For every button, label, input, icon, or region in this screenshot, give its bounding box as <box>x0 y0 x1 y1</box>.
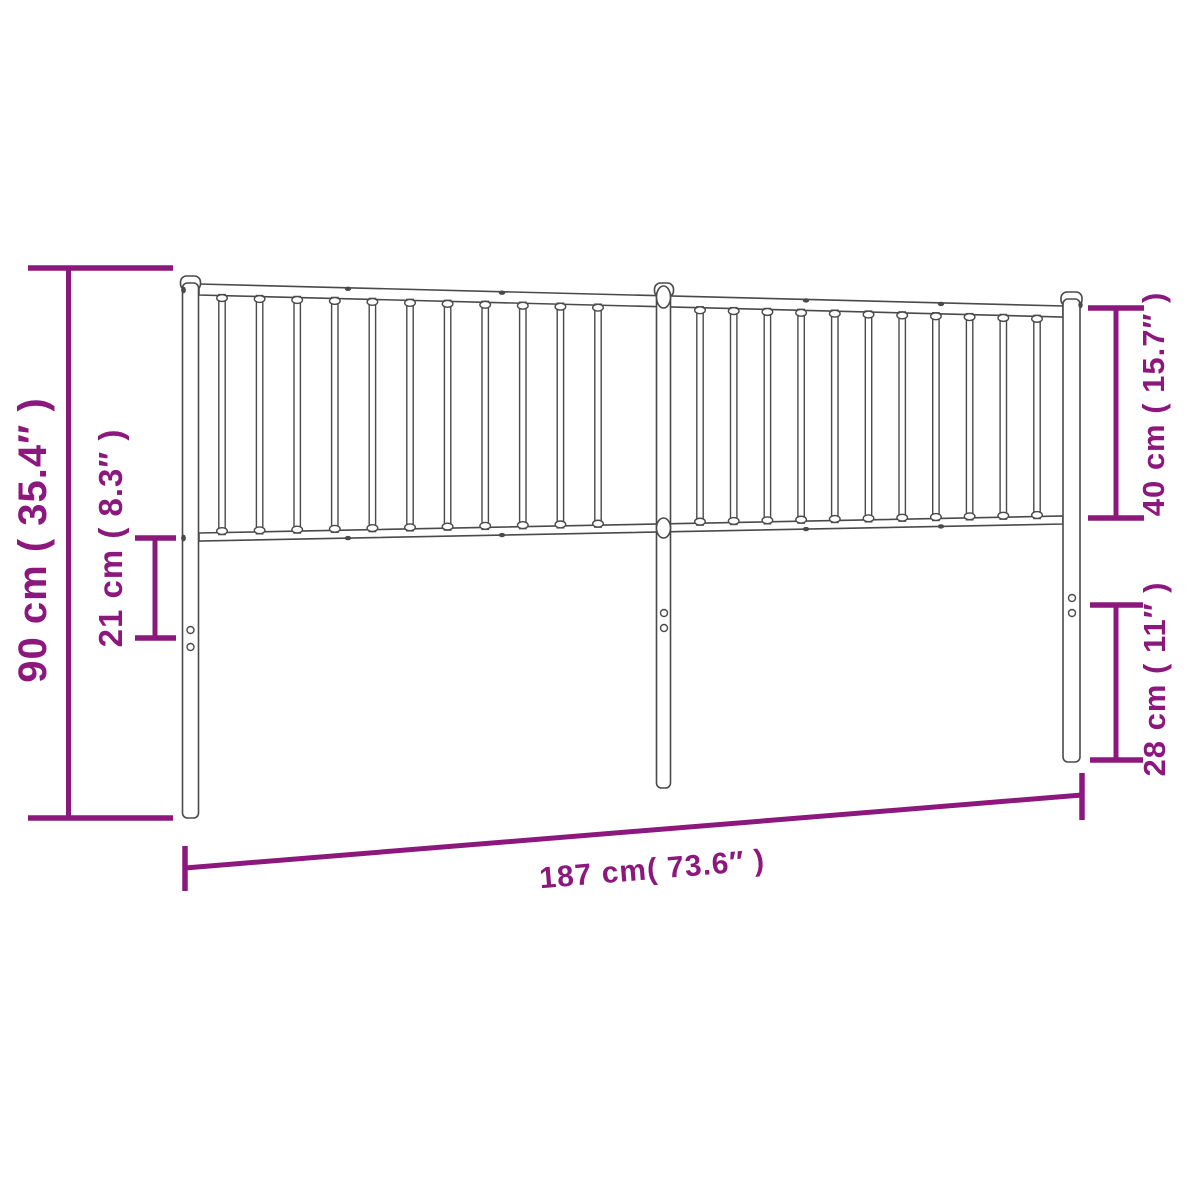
left-post-rail-weld-dot <box>181 535 186 542</box>
spindle-top-sleeve <box>897 312 908 319</box>
top-rail-weld-dot <box>803 298 809 302</box>
overall-width-label: 187 cm( 73.6″ ) <box>538 844 766 895</box>
spindle-top-sleeve <box>762 309 773 316</box>
spindle-tube <box>832 310 838 522</box>
spindle <box>555 303 566 528</box>
spindle-top-sleeve <box>830 310 841 317</box>
spindle <box>931 313 942 521</box>
spindle-bottom-sleeve <box>367 525 378 532</box>
spindle-bottom-sleeve <box>292 526 303 533</box>
dimension-leg-height: 28 cm ( 11″ ) <box>1090 581 1172 776</box>
lower-rail-weld-dot <box>345 536 351 540</box>
right-post <box>1061 292 1083 762</box>
spindle <box>998 314 1009 519</box>
spindle-bottom-sleeve <box>998 512 1009 519</box>
spindle-bottom-sleeve <box>593 520 604 527</box>
spindle <box>863 311 874 522</box>
left-post-top-weld-dot <box>181 287 186 294</box>
spindle-top-sleeve <box>728 308 739 315</box>
spindle-top-sleeve <box>254 296 265 303</box>
spindle <box>330 297 341 532</box>
spindles <box>217 295 1043 535</box>
top-rail-weld-dot <box>345 287 351 291</box>
spindle-top-sleeve <box>292 297 303 304</box>
spindle-bottom-sleeve <box>1032 512 1043 519</box>
spindle <box>593 304 604 527</box>
spindle-tube <box>731 308 737 525</box>
spindle-top-sleeve <box>1032 315 1043 322</box>
spindle-top-sleeve <box>367 299 378 306</box>
top-rail-weld-dot <box>938 302 944 306</box>
spindle-top-sleeve <box>998 315 1009 322</box>
spindle-top-sleeve <box>931 313 942 320</box>
lower-rail-weld-dot <box>938 524 944 528</box>
middle-post <box>655 283 674 788</box>
spindle-top-sleeve <box>863 311 874 318</box>
left-post-hole-upper <box>187 627 194 634</box>
spindle-tube <box>697 307 703 525</box>
middle-post-lower-ring <box>657 518 671 538</box>
spindle-top-sleeve <box>796 309 807 316</box>
right-post-top-weld-dot <box>1078 302 1082 308</box>
spindle-bottom-sleeve <box>217 528 228 535</box>
right-post-body <box>1063 299 1080 762</box>
spindle-tube <box>219 295 225 535</box>
spindle <box>292 297 303 534</box>
spindle-bottom-sleeve <box>897 514 908 521</box>
headboard-dimension-diagram: 90 cm ( 35.4″ ) 21 cm ( 8.3″ ) 40 cm ( 1… <box>0 0 1200 1200</box>
spindle <box>518 302 529 528</box>
spindle <box>1032 315 1043 518</box>
spindle-top-sleeve <box>442 300 453 307</box>
spindle <box>964 314 975 520</box>
spindle-tube <box>557 303 563 528</box>
spindle <box>762 308 773 523</box>
spindle-tube <box>1034 315 1040 518</box>
spindle-tube <box>407 299 413 530</box>
spindle-tube <box>482 301 488 529</box>
spindle-bottom-sleeve <box>480 522 491 529</box>
dimension-overall-width: 187 cm( 73.6″ ) <box>185 773 1082 895</box>
middle-post-body <box>657 290 671 788</box>
spindle-top-sleeve <box>330 298 341 305</box>
spindle <box>480 301 491 529</box>
spindle-tube <box>520 302 526 528</box>
headboard-drawing <box>181 276 1083 818</box>
spindle-tube <box>1000 314 1006 519</box>
dimension-panel-height: 40 cm ( 15.7″ ) <box>1088 292 1171 518</box>
spindle-bottom-sleeve <box>931 514 942 521</box>
spindle-bottom-sleeve <box>863 515 874 522</box>
panel-height-label: 40 cm ( 15.7″ ) <box>1136 292 1171 517</box>
spindle <box>728 308 739 525</box>
right-post-hole-upper <box>1069 595 1076 602</box>
spindle-bottom-sleeve <box>728 518 739 525</box>
spindle-tube <box>865 311 871 522</box>
middle-post-top-ring <box>657 286 671 308</box>
spindle-bottom-sleeve <box>518 522 529 529</box>
top-rail-weld-dot <box>499 291 505 295</box>
spindle-top-sleeve <box>518 302 529 309</box>
spindle <box>897 312 908 521</box>
spindle-tube <box>256 296 262 534</box>
middle-post-hole-upper <box>661 610 668 617</box>
spindle-bottom-sleeve <box>796 516 807 523</box>
rail-weld-dots <box>345 287 944 541</box>
spindle-top-sleeve <box>695 307 706 314</box>
spindle-tube <box>899 312 905 521</box>
spindle-bottom-sleeve <box>405 524 416 531</box>
spindle <box>830 310 841 522</box>
spindle <box>254 296 265 534</box>
leg-height-label: 28 cm ( 11″ ) <box>1137 581 1172 776</box>
spindle-tube <box>369 298 375 531</box>
spindle-tube <box>294 297 300 534</box>
spindle <box>405 299 416 530</box>
spindle-tube <box>332 297 338 532</box>
spindle-top-sleeve <box>217 295 228 302</box>
spindle-tube <box>798 309 804 523</box>
spindle-tube <box>595 304 601 527</box>
spindle-tube <box>444 300 450 530</box>
middle-post-hole-lower <box>661 625 668 632</box>
spindle <box>695 307 706 525</box>
left-post-body <box>183 283 199 818</box>
lower-rail-weld-dot <box>803 527 809 531</box>
spindle-bottom-sleeve <box>555 521 566 528</box>
spindle <box>796 309 807 523</box>
spindle-bottom-sleeve <box>964 513 975 520</box>
spindle-top-sleeve <box>555 303 566 310</box>
left-post-hole-lower <box>187 644 194 651</box>
top-rail <box>199 284 1063 317</box>
right-post-hole-lower <box>1069 610 1076 617</box>
lower-rail-weld-dot <box>499 533 505 537</box>
spindle-bottom-sleeve <box>254 527 265 534</box>
spindle-bottom-sleeve <box>442 523 453 530</box>
spindle <box>442 300 453 530</box>
spindle-tube <box>764 308 770 523</box>
diagram-stage: 90 cm ( 35.4″ ) 21 cm ( 8.3″ ) 40 cm ( 1… <box>0 0 1200 1200</box>
spindle-tube <box>966 314 972 520</box>
spindle-bottom-sleeve <box>330 525 341 532</box>
spindle-top-sleeve <box>480 301 491 308</box>
spindle-top-sleeve <box>964 314 975 321</box>
spindle-bottom-sleeve <box>830 516 841 523</box>
left-post <box>181 276 201 818</box>
spindle-top-sleeve <box>593 304 604 311</box>
spindle <box>367 298 378 531</box>
spindle-tube <box>933 313 939 521</box>
spindle-top-sleeve <box>405 299 416 306</box>
spindle-bottom-sleeve <box>695 518 706 525</box>
lower-rail-to-holes-label: 21 cm ( 8.3″ ) <box>92 429 129 648</box>
overall-height-label: 90 cm ( 35.4″ ) <box>11 397 55 682</box>
spindle <box>217 295 228 535</box>
dimension-lower-rail-to-holes: 21 cm ( 8.3″ ) <box>92 429 176 648</box>
spindle-bottom-sleeve <box>762 517 773 524</box>
